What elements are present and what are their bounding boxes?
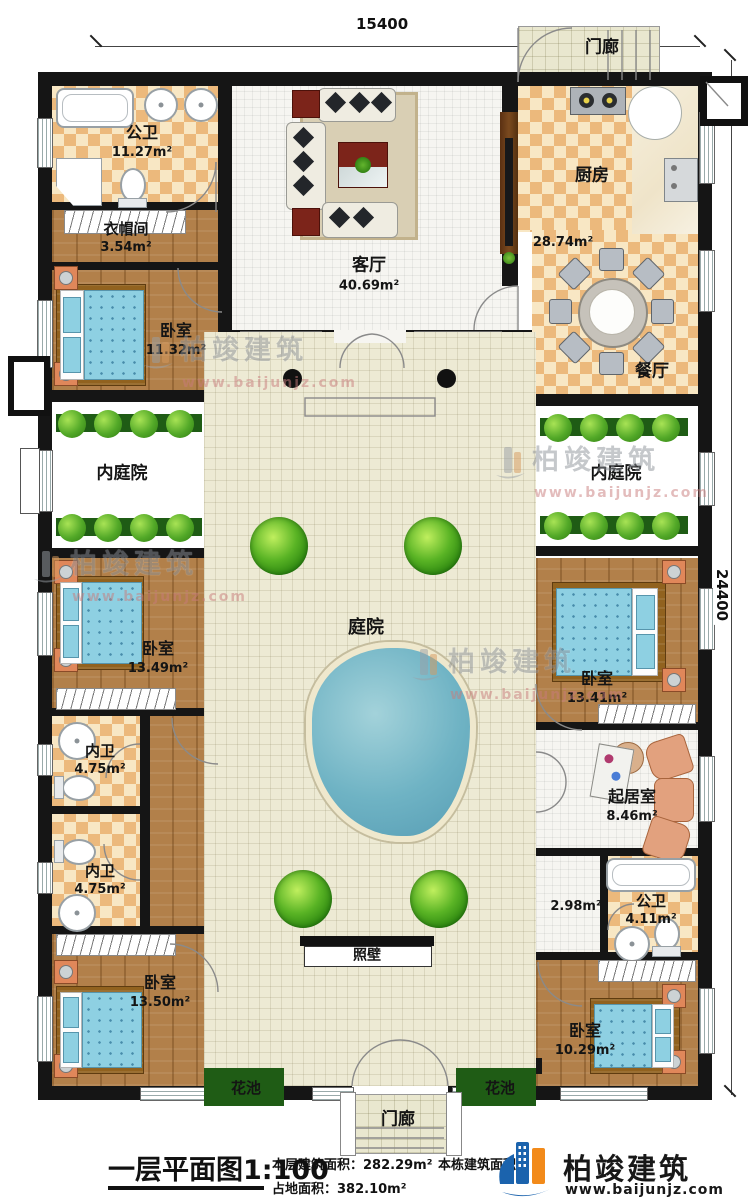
wall-niche-box — [8, 356, 50, 416]
room-area: 40.69m² — [339, 278, 399, 293]
wardrobe-icon — [56, 934, 176, 956]
bedroom-top-left-label: 卧室 11.32m² — [146, 322, 206, 358]
toilet-icon — [54, 774, 94, 802]
nightstand-icon — [662, 668, 686, 692]
corner-column-box — [700, 76, 748, 126]
bottom-porch-label: 门廊 — [381, 1111, 415, 1130]
bush-icon — [94, 410, 122, 438]
room-area: 13.41m² — [567, 691, 627, 706]
screen-wall-label: 照壁 — [353, 948, 381, 963]
window — [699, 452, 715, 506]
wall-innercourt-right-bottom — [522, 546, 698, 556]
column-icon — [437, 369, 456, 388]
tree-icon — [404, 517, 462, 575]
room-name: 卧室 — [581, 669, 613, 688]
outer-wall-top — [38, 72, 712, 86]
room-name: 卧室 — [569, 1021, 601, 1040]
wardrobe-icon — [56, 688, 176, 710]
tree-icon — [274, 870, 332, 928]
window — [37, 744, 53, 776]
dining-room-label: 餐厅 — [635, 363, 669, 382]
nightstand-icon — [54, 266, 78, 290]
bush-icon — [652, 512, 680, 540]
room-area: 4.11m² — [625, 912, 676, 927]
wardrobe-icon — [598, 960, 696, 982]
bed-pillows — [60, 992, 82, 1068]
flower-bed-left-label: 花池 — [231, 1080, 261, 1097]
stove-icon — [570, 87, 626, 115]
bed-mattress — [556, 588, 632, 676]
door-opening — [334, 330, 406, 343]
public-bath-top-label: 公卫 11.27m² — [112, 124, 172, 160]
room-name: 公卫 — [636, 892, 666, 910]
kitchen-sink-icon — [664, 158, 698, 202]
window — [37, 592, 53, 656]
hallway-area-label: 2.98m² — [550, 900, 601, 914]
room-name: 卧室 — [142, 639, 174, 658]
room-area: 11.27m² — [112, 145, 172, 160]
bush-icon — [616, 414, 644, 442]
flower-bed-right-label: 花池 — [485, 1080, 515, 1097]
room-area: 13.49m² — [128, 661, 188, 676]
bush-icon — [652, 414, 680, 442]
room-name: 起居室 — [608, 787, 656, 806]
porch-post — [446, 1092, 462, 1156]
dining-table-icon — [578, 278, 648, 348]
room-name: 客厅 — [352, 255, 386, 275]
chair-icon — [549, 299, 572, 324]
right-dimension-line — [731, 60, 732, 1095]
window — [699, 756, 715, 822]
floor-area-label: 本层建筑面积： — [272, 1158, 363, 1173]
room-name: 内卫 — [85, 862, 115, 880]
wall-bedroom-innercourt — [38, 390, 230, 402]
bed-pillows — [652, 1004, 674, 1068]
wall-partition — [140, 712, 150, 928]
wall-partition — [38, 806, 150, 814]
bush-icon — [544, 512, 572, 540]
wall-dining-bottom — [522, 394, 698, 406]
bed-pillows — [60, 290, 84, 380]
tree-icon — [410, 870, 468, 928]
room-area: 4.75m² — [74, 762, 125, 777]
nightstand-icon — [662, 560, 686, 584]
wall-seg — [502, 86, 518, 114]
sink-icon — [144, 88, 178, 122]
room-name: 公卫 — [126, 123, 158, 142]
bay-window — [20, 448, 40, 514]
bush-icon — [166, 514, 194, 542]
side-table-icon — [292, 90, 320, 118]
room-area: 11.32m² — [146, 343, 206, 358]
bush-icon — [130, 514, 158, 542]
bush-icon — [544, 414, 572, 442]
bathtub-icon — [606, 858, 696, 892]
window — [560, 1087, 648, 1101]
bed-pillows — [60, 582, 82, 664]
window — [37, 996, 53, 1062]
living-room-label: 客厅 40.69m² — [339, 256, 399, 293]
sofa-icon — [654, 778, 694, 822]
bathtub-icon — [56, 88, 134, 128]
right-dimension-label: 24400 — [713, 565, 731, 625]
sitting-room-label: 起居室 8.46m² — [606, 788, 657, 824]
room-name: 内卫 — [85, 742, 115, 760]
bed-pillows — [632, 588, 658, 676]
floor-area-value: 282.29m² — [363, 1158, 432, 1173]
porch-post — [340, 1092, 356, 1156]
room-name: 衣帽间 — [103, 220, 148, 238]
top-porch-label: 门廊 — [585, 39, 619, 58]
bedroom-mid-right-label: 卧室 13.41m² — [567, 670, 627, 706]
tree-icon — [250, 517, 308, 575]
plan-title-text: 一层平面图 — [108, 1155, 243, 1186]
bush-icon — [58, 410, 86, 438]
bedroom-bottom-left-label: 卧室 13.50m² — [130, 974, 190, 1010]
screen-wall-bar — [300, 936, 434, 946]
sink-icon — [184, 88, 218, 122]
room-area: 13.50m² — [130, 995, 190, 1010]
bush-icon — [94, 514, 122, 542]
tv-icon — [505, 138, 513, 246]
inner-bath-lower-label: 内卫 4.75m² — [74, 863, 125, 897]
sink-icon — [58, 894, 96, 932]
room-area: 8.46m² — [606, 809, 657, 824]
column-icon — [283, 369, 302, 388]
title-underline — [108, 1186, 264, 1190]
wardrobe-icon — [598, 704, 696, 724]
room-name: 卧室 — [160, 321, 192, 340]
window — [699, 250, 715, 312]
site-area-note: 占地面积：382.10m² — [272, 1178, 406, 1197]
top-dimension-label: 15400 — [352, 15, 412, 33]
public-bath-right-label: 公卫 4.11m² — [625, 893, 676, 927]
chair-icon — [599, 352, 624, 375]
outer-wall-left — [38, 72, 52, 1100]
bedroom-mid-left-label: 卧室 13.49m² — [128, 640, 188, 676]
cloakroom-label: 衣帽间 3.54m² — [100, 221, 151, 255]
inner-courtyard-right-label: 内庭院 — [591, 465, 642, 484]
chair-icon — [651, 299, 674, 324]
logo-url-text: www.baijunjz.com — [565, 1182, 724, 1198]
logo-icon — [490, 1136, 562, 1203]
dimension-tick — [724, 1085, 737, 1098]
kitchen-label: 厨房 — [575, 167, 609, 186]
toilet-icon — [118, 168, 146, 208]
bush-icon — [166, 410, 194, 438]
courtyard-label: 庭院 — [348, 618, 384, 638]
bush-icon — [616, 512, 644, 540]
wall-innercourt-bedroom2 — [38, 548, 232, 558]
plant-icon — [503, 252, 515, 264]
site-area-value: 382.10m² — [337, 1182, 406, 1197]
inner-courtyard-left-label: 内庭院 — [97, 465, 148, 484]
bush-icon — [130, 410, 158, 438]
nightstand-icon — [54, 560, 78, 584]
inner-bath-upper-label: 内卫 4.75m² — [74, 743, 125, 777]
window — [699, 988, 715, 1054]
bedroom-bottom-right-label: 卧室 10.29m² — [555, 1022, 615, 1058]
chair-icon — [599, 248, 624, 271]
room-area: 10.29m² — [555, 1043, 615, 1058]
room-name: 卧室 — [144, 973, 176, 992]
bush-icon — [58, 514, 86, 542]
site-area-label: 占地面积： — [272, 1182, 337, 1197]
floor-area-note: 本层建筑面积：282.29m² — [272, 1154, 432, 1173]
round-counter-icon — [628, 86, 682, 140]
bush-icon — [580, 512, 608, 540]
window — [37, 118, 53, 168]
window — [37, 862, 53, 894]
kitchen-area-label: 28.74m² — [533, 236, 593, 250]
side-table-icon — [292, 208, 320, 236]
bush-icon — [580, 414, 608, 442]
outer-wall-right — [698, 72, 712, 1100]
floor-plan-canvas: 15400 24400 门廊 — [0, 0, 750, 1203]
room-area: 4.75m² — [74, 882, 125, 897]
dimension-tick — [724, 49, 737, 62]
nightstand-icon — [54, 960, 78, 984]
sink-icon — [614, 926, 650, 962]
coffee-table-icon — [338, 142, 388, 188]
bed-mattress — [84, 290, 144, 380]
room-area: 3.54m² — [100, 240, 151, 255]
